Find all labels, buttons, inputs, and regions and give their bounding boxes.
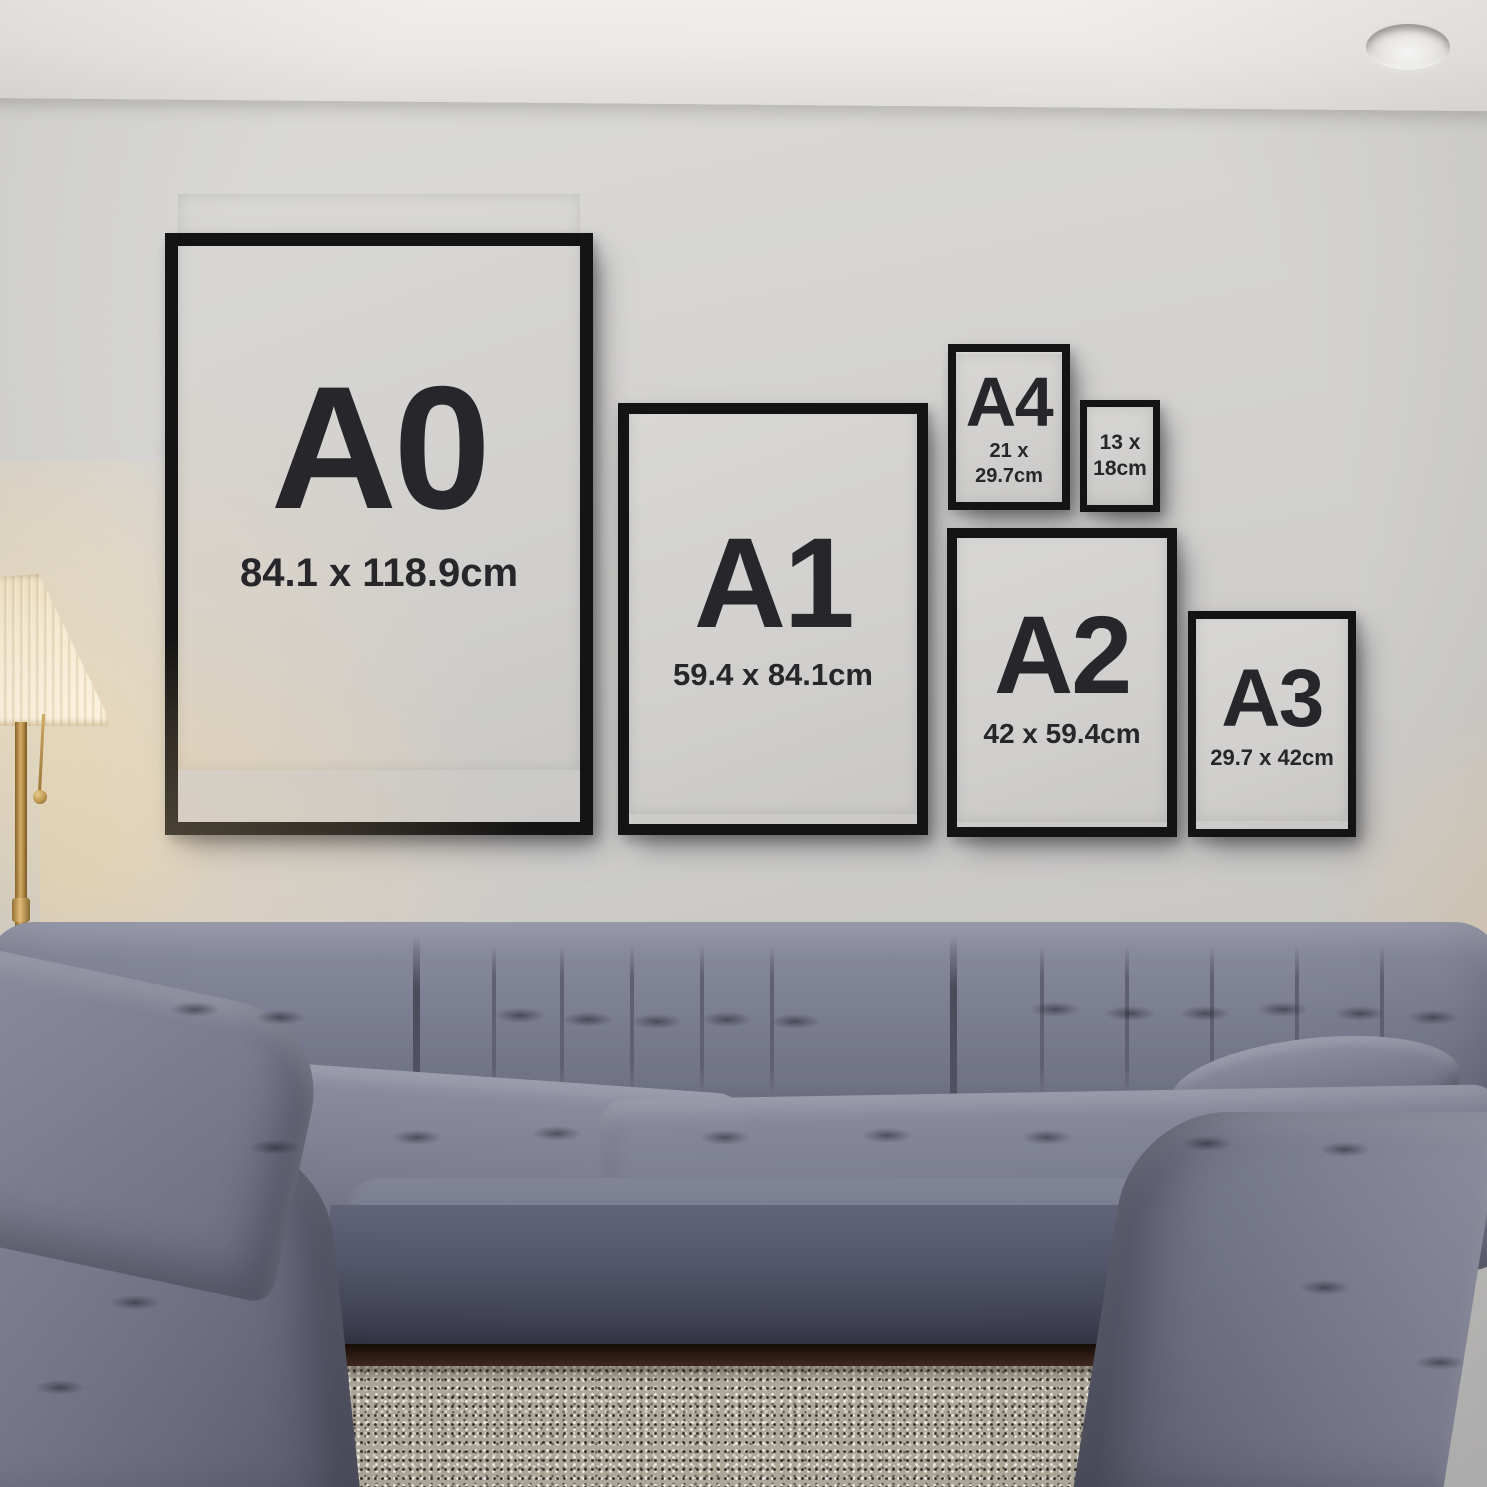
poster-a1: A1 59.4 x 84.1cm xyxy=(629,404,917,814)
poster-size-label: A1 xyxy=(694,523,853,645)
tuft-mark xyxy=(1022,1130,1072,1145)
poster-size-label: A0 xyxy=(271,366,488,532)
tuft-mark xyxy=(632,1014,682,1029)
poster-a2: A2 42 x 59.4cm xyxy=(957,533,1167,822)
tuft-mark xyxy=(1182,1136,1232,1151)
ceiling xyxy=(0,0,1487,111)
poster-13x18: 13 x 18cm xyxy=(1087,407,1153,505)
tuft-mark xyxy=(1415,1355,1465,1370)
poster-a0: A0 84.1 x 118.9cm xyxy=(178,194,580,770)
tuft-mark xyxy=(392,1130,442,1145)
poster-size-label: A2 xyxy=(994,604,1130,709)
sofa-chaise-right xyxy=(1071,1112,1487,1487)
poster-frame-a2: A2 42 x 59.4cm xyxy=(947,528,1177,837)
tuft-mark xyxy=(702,1012,752,1027)
poster-a4: A4 21 x 29.7cm xyxy=(956,354,1062,504)
living-room-scene: A0 84.1 x 118.9cm A1 59.4 x 84.1cm A4 21… xyxy=(0,0,1487,1487)
lamp-pole-joint xyxy=(12,898,30,922)
poster-size-dimensions: 21 x 29.7cm xyxy=(956,439,1062,489)
tuft-mark xyxy=(35,1380,85,1395)
poster-size-dimensions: 42 x 59.4cm xyxy=(983,716,1140,751)
poster-frame-a3: A3 29.7 x 42cm xyxy=(1188,611,1356,837)
tuft-mark xyxy=(1105,1006,1155,1021)
poster-frame-13x18: 13 x 18cm xyxy=(1080,400,1160,512)
poster-size-label: A3 xyxy=(1221,660,1323,738)
poster-frame-a4: A4 21 x 29.7cm xyxy=(948,344,1070,510)
seam-line xyxy=(1040,945,1044,1095)
tuft-mark xyxy=(495,1008,545,1023)
tuft-mark xyxy=(1335,1006,1385,1021)
tuft-mark xyxy=(170,1002,220,1017)
recessed-ceiling-light xyxy=(1366,24,1450,70)
tuft-mark xyxy=(1180,1006,1230,1021)
poster-frame-a0: A0 84.1 x 118.9cm xyxy=(165,233,593,835)
poster-size-dimensions: 59.4 x 84.1cm xyxy=(673,656,873,695)
tuft-mark xyxy=(255,1010,305,1025)
tuft-mark xyxy=(1030,1002,1080,1017)
tuft-mark xyxy=(862,1128,912,1143)
tuft-mark xyxy=(1320,1142,1370,1157)
poster-size-dimensions: 29.7 x 42cm xyxy=(1210,744,1334,772)
tuft-mark xyxy=(700,1130,750,1145)
seam-line xyxy=(492,945,496,1095)
poster-frame-a1: A1 59.4 x 84.1cm xyxy=(618,403,928,835)
tuft-mark xyxy=(563,1012,613,1027)
tuft-mark xyxy=(1408,1010,1458,1025)
tuft-mark xyxy=(770,1014,820,1029)
sofa-base-panel xyxy=(330,1205,1170,1357)
lamp-pull-chain-ball xyxy=(33,790,47,804)
poster-size-label: A4 xyxy=(966,369,1053,436)
tuft-mark xyxy=(1300,1280,1350,1295)
tuft-mark xyxy=(1258,1002,1308,1017)
tuft-mark xyxy=(110,1295,160,1310)
tuft-mark xyxy=(532,1126,582,1141)
poster-size-dimensions: 13 x 18cm xyxy=(1093,430,1147,483)
tuft-mark xyxy=(250,1140,300,1155)
poster-size-dimensions: 84.1 x 118.9cm xyxy=(240,548,518,598)
poster-a3: A3 29.7 x 42cm xyxy=(1196,611,1348,821)
